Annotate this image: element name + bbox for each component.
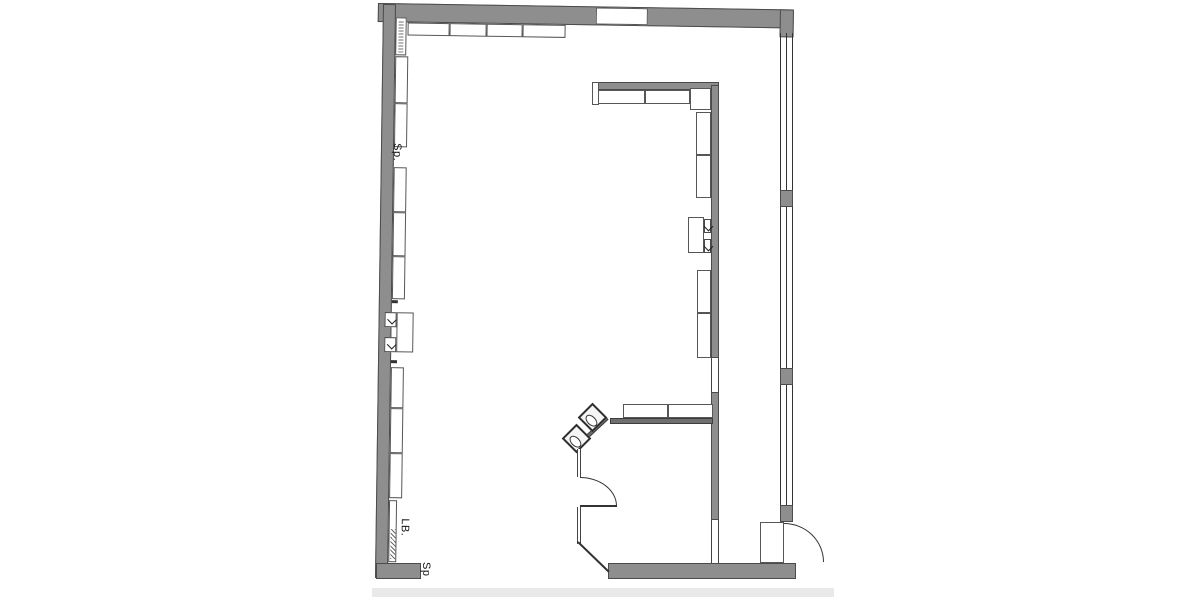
counter-cabinet-1 (623, 404, 668, 418)
basin-bowl (583, 413, 599, 429)
cabinet-interior-col-2 (696, 155, 711, 198)
cabinet-interior-col-4 (697, 313, 711, 358)
wall-bottom-left-stub (376, 563, 421, 579)
appliance-left (396, 312, 414, 352)
arrow-box-1 (384, 312, 396, 327)
window-mullion-1 (780, 190, 793, 207)
cabinet-interior-col-1 (696, 112, 711, 155)
basin-bowl (567, 434, 583, 450)
pass-through-opening (711, 358, 719, 392)
interior-door-opening (711, 520, 719, 563)
tick-mark (391, 360, 397, 363)
tick-mark (392, 300, 398, 303)
cabinet-left-1 (395, 56, 409, 103)
cabinet-top-2 (449, 23, 486, 37)
counter-bar (610, 418, 713, 424)
cabinet-interior-top-1 (598, 90, 645, 104)
room-wall-left-lower (577, 507, 581, 544)
entry-door-swing-arc (784, 523, 824, 562)
left-wall-group: Sp. LB. (375, 4, 428, 581)
room-door-swing-arc (580, 477, 617, 506)
tall-cabinet-1 (390, 367, 404, 408)
room-wall-left-upper (577, 449, 581, 477)
window-mullion-2 (780, 368, 793, 385)
lb-label: LB. (399, 518, 410, 536)
cabinet-top-4 (522, 24, 565, 38)
arrow-box-2 (384, 337, 396, 352)
window-mullion-3 (780, 505, 793, 522)
washbasin-icon (578, 403, 608, 433)
cabinet-left-2 (394, 103, 408, 147)
cabinet-interior-col-3 (697, 270, 711, 313)
sink-label-bottom: Sp (420, 562, 431, 579)
arrow-box-4 (704, 239, 711, 253)
cabinet-left-3 (393, 167, 407, 212)
page-edge-shadow (372, 588, 834, 597)
tall-cabinet-3 (389, 453, 403, 498)
arrow-box-3 (704, 219, 711, 233)
cabinet-top-3 (486, 24, 522, 38)
cabinet-interior-top-2 (645, 90, 690, 104)
window-top (596, 7, 648, 25)
wall-right-window (780, 33, 793, 522)
wall-interior-vertical-upper (711, 85, 719, 358)
cabinet-interior-corner (690, 88, 711, 110)
cabinet-left-4 (392, 212, 406, 256)
top-wall-group (377, 3, 794, 80)
appliance-interior (688, 217, 704, 253)
sink-label: Sp. (391, 143, 402, 161)
counter-cabinet-2 (668, 404, 713, 418)
wall-bottom (608, 563, 796, 579)
lb-strip (388, 500, 397, 562)
diagonal-wall-lower (577, 541, 609, 572)
hatch-texture (390, 529, 395, 559)
floor-plan-canvas: Sp. LB. Sp (0, 0, 1200, 600)
tall-cabinet-2 (390, 408, 404, 453)
entry-door-leaf (760, 522, 784, 563)
cabinet-left-5 (392, 256, 406, 299)
